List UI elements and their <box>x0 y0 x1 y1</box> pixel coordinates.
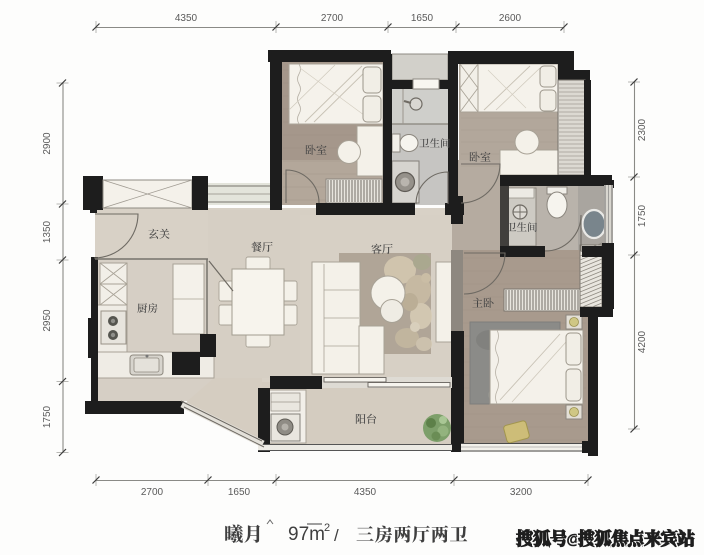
svg-text:2700: 2700 <box>141 487 164 498</box>
svg-text:4350: 4350 <box>354 487 377 498</box>
svg-text:1350: 1350 <box>42 220 53 243</box>
svg-text:97m: 97m <box>288 524 325 545</box>
svg-text:2700: 2700 <box>321 13 344 24</box>
svg-text:3200: 3200 <box>510 487 533 498</box>
svg-text:4200: 4200 <box>637 330 648 353</box>
svg-text:/: / <box>334 526 339 545</box>
svg-text:2600: 2600 <box>499 13 522 24</box>
svg-text:1650: 1650 <box>228 487 251 498</box>
svg-text:2: 2 <box>324 522 330 534</box>
svg-text:1650: 1650 <box>411 13 434 24</box>
svg-text:2900: 2900 <box>42 132 53 155</box>
svg-text:4350: 4350 <box>175 13 198 24</box>
svg-text:2300: 2300 <box>637 118 648 141</box>
svg-text:1750: 1750 <box>637 204 648 227</box>
svg-text:2950: 2950 <box>42 309 53 332</box>
svg-text:1750: 1750 <box>42 405 53 428</box>
